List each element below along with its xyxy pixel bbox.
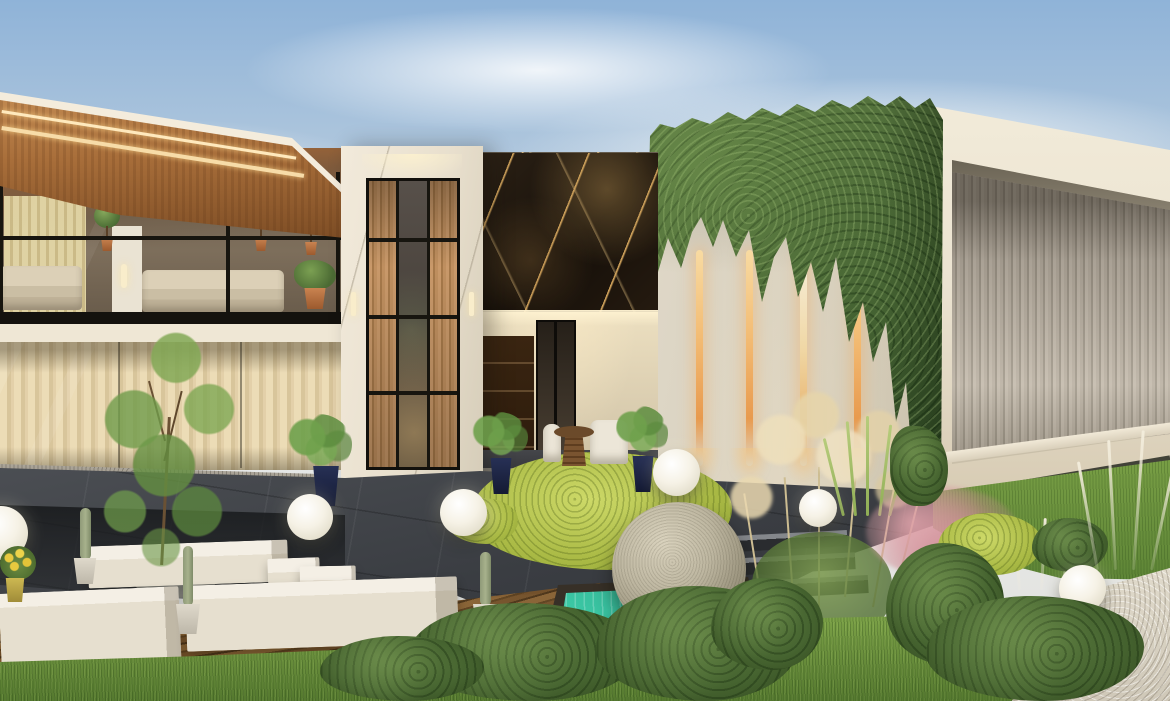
boxwood-shrub [1032,518,1108,572]
terracotta-pot [100,238,114,251]
villa-render [0,0,1170,701]
sofa-left [0,266,82,310]
tower-marble-frame [341,146,483,506]
tree-trunk [160,417,171,565]
white-bench [0,586,181,666]
slit-glow [836,448,880,488]
entry-tower [0,0,1170,701]
lounge-and-lamps [0,0,1170,701]
plant-foliage [616,406,668,458]
navy-pot [488,458,514,494]
sphere-lamp [1059,565,1106,612]
chartreuse-groundcover [470,452,732,570]
granite-sphere-sculpture [612,502,746,636]
grass-blade [846,421,857,516]
pampas-stem [818,467,820,607]
tree-foliage [98,322,248,578]
floor-slab-shadow [0,312,346,324]
cube-stool [267,557,320,599]
cube-stool [300,566,357,603]
slate-paving [0,455,1170,701]
grass-blade [866,416,869,516]
pampas-stem [784,477,794,597]
gray-pouf [128,548,220,598]
topiary-foliage [94,204,120,228]
ivy-corner-shrub [890,426,948,506]
pampas-stem [892,505,918,602]
grass-spike [1060,531,1074,590]
right-pavilion-sill [946,422,1170,463]
foreground-bushes [0,0,1170,701]
sphere-sculpture-shadow [598,616,758,642]
ribbed-wall [952,166,1170,462]
right-pavilion-frame [920,100,1170,510]
wood-slat-pane [369,181,396,467]
yellow-blooms [0,546,36,580]
boxwood-bush [711,578,823,670]
led-strip-light [1,126,304,177]
potted-cactus [172,546,204,636]
topiary-trunk [310,230,312,244]
light-slit-2 [746,250,753,466]
pool-stone-rim [536,575,770,675]
topiary-plant [246,204,276,264]
porch [0,0,1170,701]
water-feature [0,0,1170,701]
flower-planter [4,578,26,602]
yellow-flower-pot [0,546,36,604]
terracotta-pot [303,288,327,309]
rattan-table-base [562,434,586,466]
wall-sconce-light [351,292,356,316]
ivy-wing-wall [645,105,940,505]
turquoise-pool [558,585,756,643]
window-mullion [427,181,430,467]
copper-soffit-roof [0,84,350,244]
potted-plant [294,260,336,310]
cactus-pot [71,558,99,584]
slit-glow [678,448,722,488]
white-feather-grass [984,512,1088,590]
glass-mullion [0,158,3,336]
garden-step [695,530,848,554]
window-mullion [369,315,457,319]
glass-mullion [226,168,230,336]
sunken-lounge-shadow [0,505,345,605]
foreground-ground [0,0,1170,701]
grass-spike [1107,440,1116,570]
porch-furniture [0,0,1170,701]
white-pier [112,226,142,336]
sphere-lamp [799,489,837,527]
sphere-lamp [653,449,700,496]
sofa-center [142,270,284,312]
tall-grass-tuft [824,414,902,516]
grass-spike [1040,518,1046,590]
cascading-ivy [640,92,950,504]
boxwood-bush [320,636,484,701]
potted-plant-navy [288,414,352,506]
chartreuse-shrub [938,513,1042,575]
slit-glow [782,448,826,488]
boxwood-bush [596,586,800,701]
porch-floor [478,450,658,476]
porch-wood-shelving [478,336,534,470]
pier-sconce-light [121,264,127,288]
cactus-body [80,508,91,560]
gravel-path [998,558,1170,701]
pool-front-face [540,643,772,675]
tower-cove-light [362,154,462,180]
led-strip-light [2,110,297,160]
grass-blade [823,438,845,516]
wall-sconce-light [469,292,474,316]
potted-cactus [468,552,502,636]
pampas-base-leaves [752,532,892,637]
porch-back-wall [476,312,658,488]
topiary-foliage [248,204,274,228]
floor-slab [0,324,346,342]
right-pavilion-base-shadow [921,455,1170,509]
grass-spike [1076,542,1093,591]
pink-muhly-grass [866,486,1018,578]
porch-chair [543,424,561,462]
topiary-trunk [260,226,262,240]
navy-pot [630,456,656,492]
porch-step [480,468,658,477]
timber-deck-edge [1121,481,1170,503]
potted-plant-navy [616,406,668,494]
porch-glass-door [536,320,576,470]
sphere-lamp [0,506,28,560]
pampas-stem [844,477,856,597]
terracotta-pot [304,242,318,255]
glass-joint [240,342,242,468]
granite-step [0,479,336,505]
timber-deck [0,628,560,670]
white-bench [185,576,459,651]
window-mullion [369,391,457,395]
left-pavilion [0,0,1170,701]
garden-step [678,575,869,603]
granite-step [0,464,336,492]
ivy-wing [0,0,1170,701]
courtyard-ground [0,0,1170,701]
sphere-lamp [287,494,333,540]
cactus-pot [173,604,203,634]
cactus-body [480,552,491,606]
light-slit-3 [800,250,807,466]
ground-floor-curtain-wall [0,342,346,470]
tree-branch [148,381,166,441]
white-feather-grass [1086,420,1170,570]
interior-curtains [4,196,86,322]
pampas-stem [743,493,763,612]
glass-joint [118,342,120,468]
glass-mullion [336,172,340,336]
tree-branch [163,391,182,461]
topiary-plant [92,204,122,264]
garden-step [687,552,856,578]
topiary-plant [296,208,326,268]
upper-glass-lounge [0,148,346,336]
grass-blade [878,425,892,517]
black-marble-wall [476,152,658,318]
boxwood-bush [408,603,640,701]
plant-foliage [288,414,352,472]
front-lawn [0,612,1170,701]
grass-spike [1013,522,1020,590]
garden-tree [98,322,248,578]
grass-blade [888,440,911,516]
boxwood-bush [886,543,1004,665]
right-pavilion [0,0,1170,701]
tower-window [366,178,460,470]
rattan-table-top [554,426,594,438]
granite-curb [418,588,604,619]
tower-glass-pane [399,181,427,467]
light-slit-4 [854,250,861,466]
chartreuse-groundcover [448,498,518,544]
timber-deck [384,583,606,659]
potted-cactus [70,508,100,584]
sphere-lamp [440,489,487,536]
terracotta-pot [254,238,268,251]
white-bench [87,540,288,589]
pampas-grass [722,382,918,640]
topiary-foliage [298,208,324,232]
glass-transom-mullion [0,236,346,240]
boxwood-bush [926,596,1144,701]
garden-flora [0,0,1170,701]
wood-slat-pane [430,181,457,467]
pampas-stem [872,489,894,607]
grass-spike [984,533,999,590]
sky-with-clouds [0,0,1170,701]
potted-plant-navy [472,412,528,496]
slit-glow [728,448,772,488]
roof-fascia [0,84,350,204]
window-mullion [369,238,457,242]
pampas-plumes [722,382,918,547]
light-slit-1 [696,250,703,466]
cactus-pot [470,604,500,635]
tower-base-step [341,490,483,504]
plant-foliage [294,260,336,290]
window-mullion [396,181,399,467]
grass-spike [1077,461,1099,570]
topiary-trunk [106,226,108,240]
grass-spike [1132,430,1144,570]
grass-spike [1150,457,1170,570]
lawn-right [928,450,1170,585]
plant-foliage [472,412,528,460]
porch-chair [590,420,628,464]
right-pavilion-recess [948,152,1170,467]
navy-pot [310,466,342,506]
cactus-body [183,546,193,606]
